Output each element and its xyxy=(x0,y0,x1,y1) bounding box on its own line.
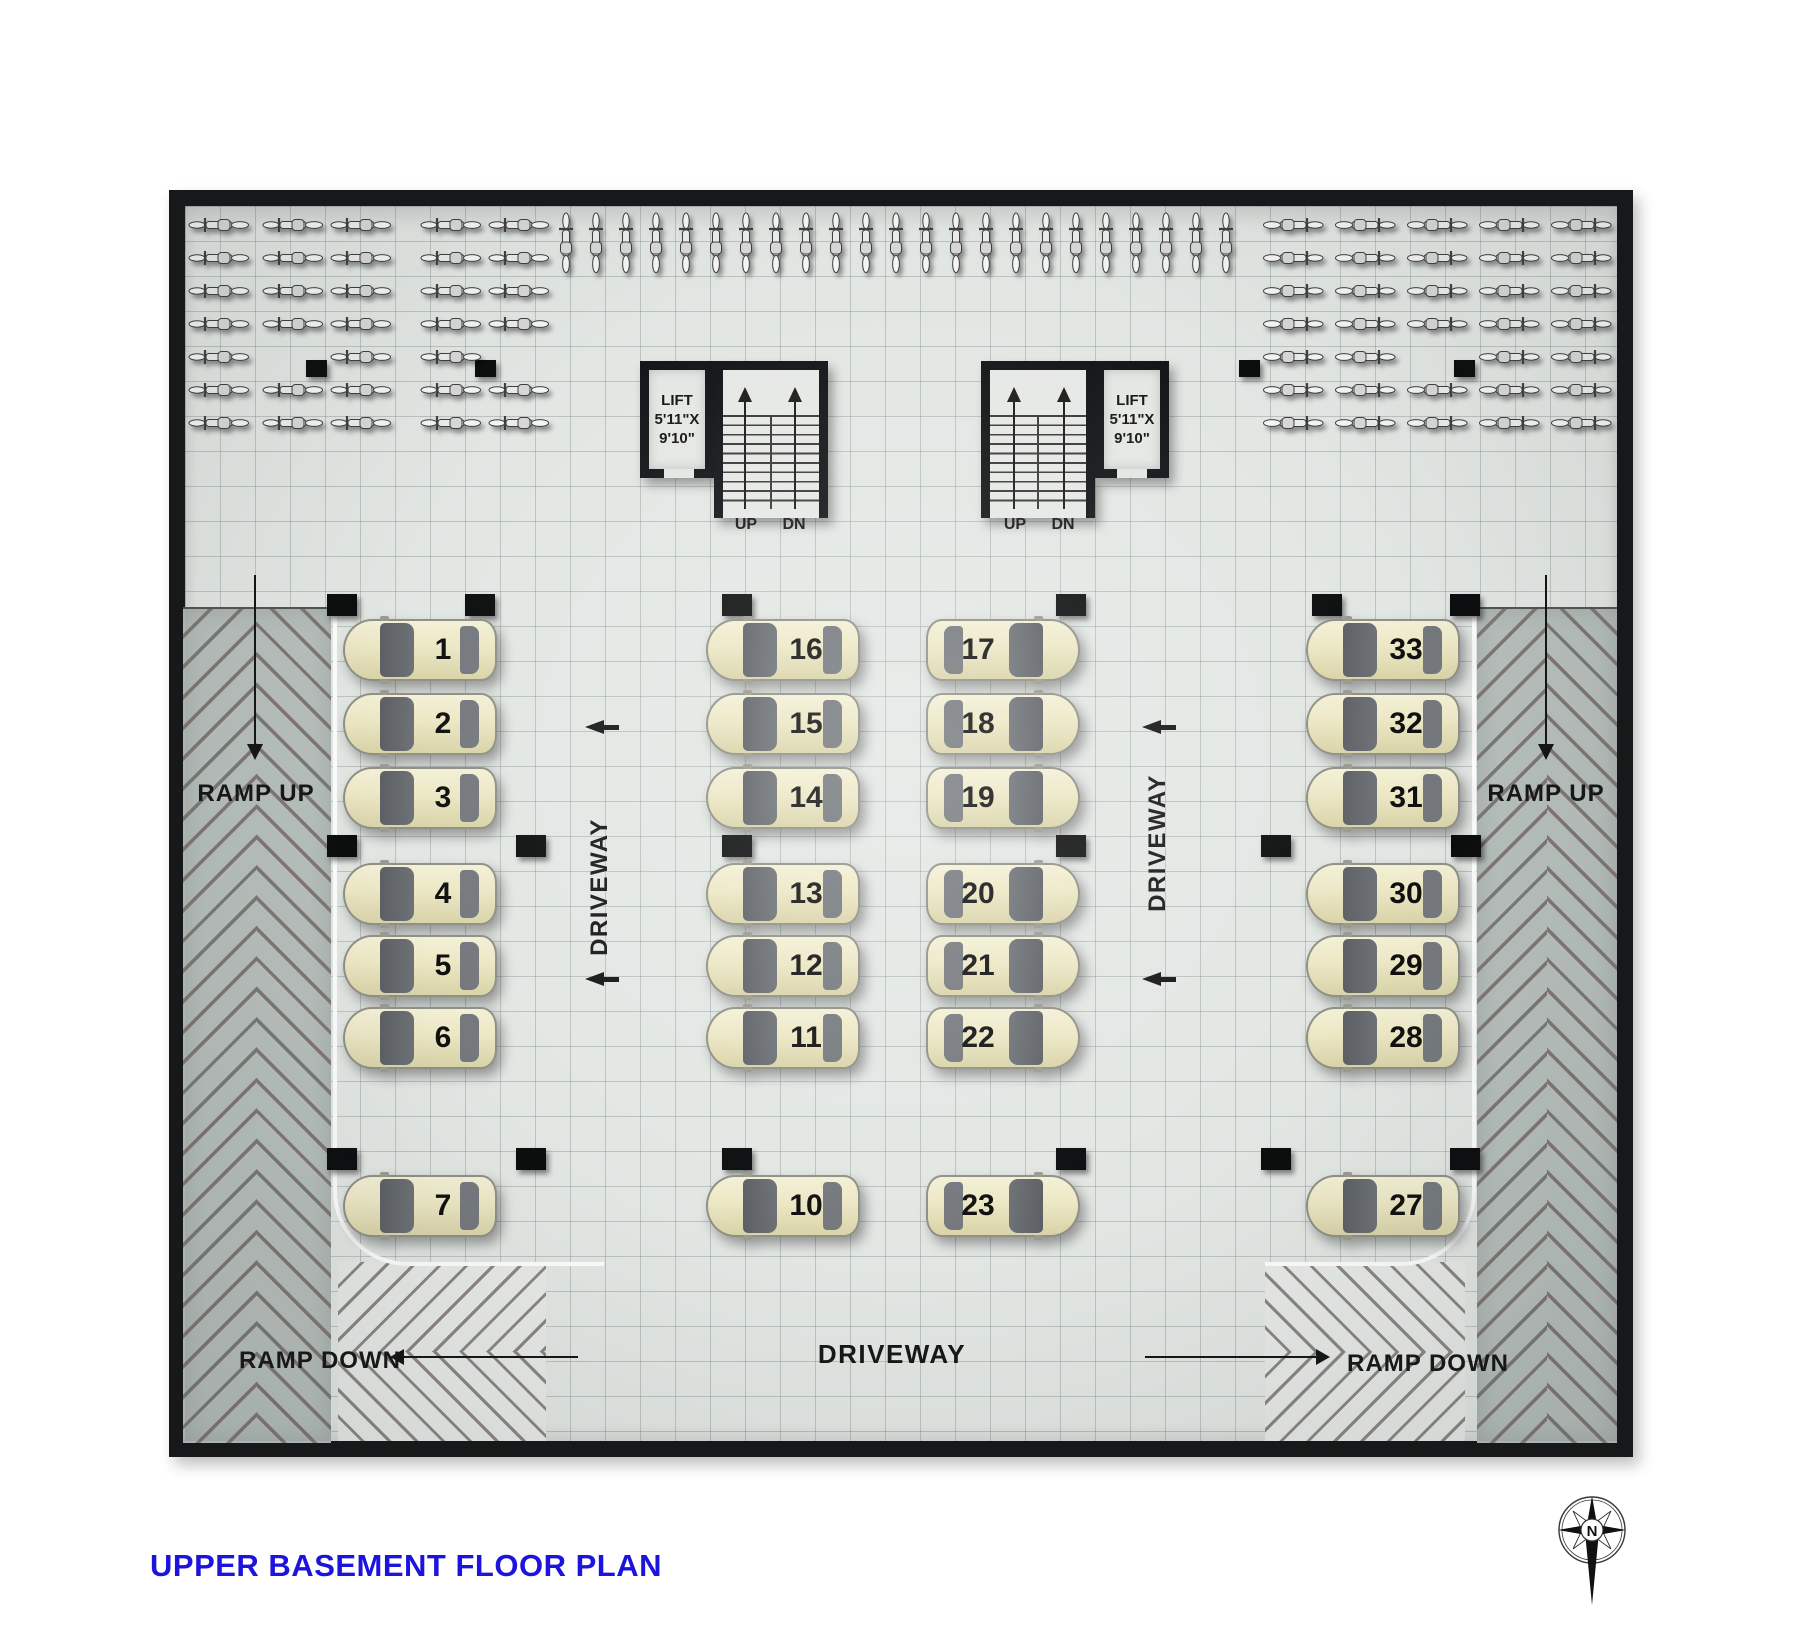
car-windshield xyxy=(380,867,414,921)
slot-number: 12 xyxy=(783,934,829,998)
motorcycle-icon xyxy=(1406,380,1468,405)
column-pillar xyxy=(1261,1148,1291,1170)
ramp-up-label-left: RAMP UP xyxy=(176,780,336,808)
slot-number: 13 xyxy=(783,862,829,926)
motorcycle-icon xyxy=(706,212,726,279)
parking-slot-car-28: 28 xyxy=(1305,1006,1461,1070)
parking-slot-car-30: 30 xyxy=(1305,862,1461,926)
car-windshield xyxy=(1343,1179,1377,1233)
motorcycle-icon xyxy=(1334,380,1396,405)
column-pillar xyxy=(516,835,546,857)
parking-slot-car-14: 14 xyxy=(705,766,861,830)
motorcycle-icon xyxy=(826,212,846,279)
car-windshield xyxy=(380,623,414,677)
column-pillar xyxy=(722,1148,752,1170)
column-pillar xyxy=(306,360,327,377)
slot-number: 3 xyxy=(420,766,466,830)
car-windshield xyxy=(1009,623,1043,677)
slot-number: 22 xyxy=(955,1006,1001,1070)
motorcycle-icon xyxy=(420,314,482,339)
driveway-direction-arrow-icon xyxy=(585,972,621,986)
column-pillar xyxy=(1451,835,1481,857)
column-pillar xyxy=(1454,360,1475,377)
parking-slot-car-22: 22 xyxy=(925,1006,1081,1070)
slot-number: 6 xyxy=(420,1006,466,1070)
stairs-up-label-right: UP xyxy=(995,516,1035,534)
motorcycle-icon xyxy=(1262,347,1324,372)
car-windshield xyxy=(743,867,777,921)
motorcycle-icon xyxy=(188,281,250,306)
driveway-direction-arrow-icon xyxy=(585,720,621,734)
column-pillar xyxy=(1056,835,1086,857)
motorcycle-icon xyxy=(188,248,250,273)
stairs-down-label-left: DN xyxy=(774,516,814,534)
chevron-pattern xyxy=(338,1262,546,1352)
motorcycle-icon xyxy=(1156,212,1176,279)
chevron-pattern xyxy=(1265,1262,1465,1352)
slot-number: 28 xyxy=(1383,1006,1429,1070)
car-windshield xyxy=(1009,1179,1043,1233)
chevron-pattern xyxy=(183,609,257,1443)
motorcycle-icon xyxy=(886,212,906,279)
driveway-direction-arrow-icon xyxy=(1142,720,1178,734)
motorcycle-icon xyxy=(188,215,250,240)
column-pillar xyxy=(465,594,495,616)
column-pillar xyxy=(722,835,752,857)
motorcycle-icon xyxy=(1262,248,1324,273)
lift-label-right: LIFT 5'11"X 9'10" xyxy=(1095,391,1169,448)
column-pillar xyxy=(327,1148,357,1170)
motorcycle-icon xyxy=(1262,215,1324,240)
motorcycle-icon xyxy=(420,413,482,438)
slot-number: 23 xyxy=(955,1174,1001,1238)
slot-number: 19 xyxy=(955,766,1001,830)
car-windshield xyxy=(743,1011,777,1065)
parking-slot-car-17: 17 xyxy=(925,618,1081,682)
motorcycle-icon xyxy=(1406,248,1468,273)
car-windshield xyxy=(1343,771,1377,825)
motorcycle-icon xyxy=(488,314,550,339)
motorcycle-icon xyxy=(736,212,756,279)
motorcycle-icon xyxy=(188,413,250,438)
parking-slot-car-29: 29 xyxy=(1305,934,1461,998)
chevron-pattern xyxy=(1477,609,1547,1443)
stair-divider xyxy=(1037,415,1039,509)
car-windshield xyxy=(1009,771,1043,825)
slot-number: 33 xyxy=(1383,618,1429,682)
lift-door-right xyxy=(1117,469,1147,478)
slot-number: 17 xyxy=(955,618,1001,682)
slot-number: 20 xyxy=(955,862,1001,926)
motorcycle-icon xyxy=(330,248,392,273)
parking-slot-car-15: 15 xyxy=(705,692,861,756)
ramp-down-arrow-icon xyxy=(1145,1356,1317,1358)
parking-slot-car-21: 21 xyxy=(925,934,1081,998)
motorcycle-icon xyxy=(330,413,392,438)
motorcycle-icon xyxy=(1478,281,1540,306)
parking-slot-car-12: 12 xyxy=(705,934,861,998)
car-windshield xyxy=(1009,939,1043,993)
motorcycle-icon xyxy=(1036,212,1056,279)
compass-north-icon: N xyxy=(1542,1478,1642,1608)
slot-number: 1 xyxy=(420,618,466,682)
motorcycle-icon xyxy=(586,212,606,279)
slot-number: 5 xyxy=(420,934,466,998)
slot-number: 30 xyxy=(1383,862,1429,926)
motorcycle-icon xyxy=(796,212,816,279)
motorcycle-icon xyxy=(1478,413,1540,438)
motorcycle-icon xyxy=(1262,281,1324,306)
column-pillar xyxy=(1056,594,1086,616)
slot-number: 29 xyxy=(1383,934,1429,998)
ramp-up-label-right: RAMP UP xyxy=(1466,780,1626,808)
floor-plan-canvas: LIFT 5'11"X 9'10" UP DN LIFT 5'11"X 9'10… xyxy=(0,0,1800,1650)
motorcycle-icon xyxy=(1006,212,1026,279)
parking-slot-car-2: 2 xyxy=(342,692,498,756)
motorcycle-icon xyxy=(262,215,324,240)
motorcycle-icon xyxy=(1334,281,1396,306)
driveway-direction-arrow-icon xyxy=(1142,972,1178,986)
car-windshield xyxy=(380,1011,414,1065)
motorcycle-icon xyxy=(556,212,576,279)
motorcycle-icon xyxy=(1066,212,1086,279)
motorcycle-icon xyxy=(1334,314,1396,339)
motorcycle-icon xyxy=(1478,215,1540,240)
parking-slot-car-10: 10 xyxy=(705,1174,861,1238)
column-pillar xyxy=(1261,835,1291,857)
motorcycle-icon xyxy=(420,248,482,273)
motorcycle-icon xyxy=(616,212,636,279)
ramp-down-label-right: RAMP DOWN xyxy=(1318,1350,1538,1378)
parking-slot-car-6: 6 xyxy=(342,1006,498,1070)
column-pillar xyxy=(1239,360,1260,377)
parking-slot-car-18: 18 xyxy=(925,692,1081,756)
driveway-label-left: DRIVEWAY xyxy=(586,807,616,967)
stair-up-arrow-icon xyxy=(1013,400,1015,509)
parking-slot-car-23: 23 xyxy=(925,1174,1081,1238)
motorcycle-icon xyxy=(1334,413,1396,438)
slot-number: 4 xyxy=(420,862,466,926)
motorcycle-icon xyxy=(1216,212,1236,279)
parking-slot-car-3: 3 xyxy=(342,766,498,830)
parking-slot-car-32: 32 xyxy=(1305,692,1461,756)
motorcycle-icon xyxy=(420,281,482,306)
column-pillar xyxy=(1312,594,1342,616)
motorcycle-icon xyxy=(646,212,666,279)
column-pillar xyxy=(327,594,357,616)
car-windshield xyxy=(743,623,777,677)
ramp-direction-arrow-icon xyxy=(254,575,256,745)
motorcycle-icon xyxy=(1334,248,1396,273)
motorcycle-icon xyxy=(1126,212,1146,279)
car-windshield xyxy=(1343,623,1377,677)
motorcycle-icon xyxy=(330,215,392,240)
car-windshield xyxy=(1343,867,1377,921)
parking-slot-car-5: 5 xyxy=(342,934,498,998)
motorcycle-icon xyxy=(488,380,550,405)
parking-slot-car-19: 19 xyxy=(925,766,1081,830)
car-windshield xyxy=(380,1179,414,1233)
parking-slot-car-11: 11 xyxy=(705,1006,861,1070)
slot-number: 7 xyxy=(420,1174,466,1238)
motorcycle-icon xyxy=(1550,413,1612,438)
parking-slot-car-4: 4 xyxy=(342,862,498,926)
motorcycle-icon xyxy=(1478,248,1540,273)
motorcycle-icon xyxy=(488,215,550,240)
column-pillar xyxy=(1056,1148,1086,1170)
motorcycle-icon xyxy=(330,281,392,306)
car-windshield xyxy=(1009,1011,1043,1065)
motorcycle-icon xyxy=(1550,347,1612,372)
motorcycle-icon xyxy=(1096,212,1116,279)
slot-number: 2 xyxy=(420,692,466,756)
column-pillar xyxy=(1450,594,1480,616)
stair-up-arrow-icon xyxy=(794,400,796,509)
motorcycle-icon xyxy=(420,215,482,240)
slot-number: 18 xyxy=(955,692,1001,756)
car-windshield xyxy=(1343,939,1377,993)
car-windshield xyxy=(1343,697,1377,751)
parking-slot-car-27: 27 xyxy=(1305,1174,1461,1238)
stair-up-arrow-icon xyxy=(1063,400,1065,509)
staircase-left xyxy=(714,361,828,518)
motorcycle-icon xyxy=(976,212,996,279)
motorcycle-icon xyxy=(676,212,696,279)
motorcycle-icon xyxy=(488,413,550,438)
motorcycle-icon xyxy=(188,380,250,405)
motorcycle-icon xyxy=(1262,413,1324,438)
motorcycle-icon xyxy=(262,380,324,405)
compass-north-letter: N xyxy=(1587,1523,1598,1540)
car-windshield xyxy=(1343,1011,1377,1065)
motorcycle-icon xyxy=(330,347,392,372)
motorcycle-icon xyxy=(1478,314,1540,339)
motorcycle-icon xyxy=(330,380,392,405)
chevron-pattern xyxy=(1547,609,1617,1443)
driveway-label-bottom: DRIVEWAY xyxy=(772,1339,1012,1370)
driveway-label-right: DRIVEWAY xyxy=(1144,763,1174,923)
motorcycle-icon xyxy=(262,281,324,306)
column-pillar xyxy=(516,1148,546,1170)
motorcycle-icon xyxy=(1334,347,1396,372)
parking-slot-car-16: 16 xyxy=(705,618,861,682)
page-title: UPPER BASEMENT FLOOR PLAN xyxy=(150,1548,662,1584)
chevron-pattern xyxy=(257,609,331,1443)
motorcycle-icon xyxy=(188,347,250,372)
stairs-up-label-left: UP xyxy=(726,516,766,534)
motorcycle-icon xyxy=(1262,380,1324,405)
car-windshield xyxy=(1009,697,1043,751)
ramp-down-arrow-icon xyxy=(403,1356,578,1358)
slot-number: 15 xyxy=(783,692,829,756)
car-windshield xyxy=(380,697,414,751)
motorcycle-icon xyxy=(262,248,324,273)
motorcycle-icon xyxy=(262,413,324,438)
parking-slot-car-31: 31 xyxy=(1305,766,1461,830)
slot-number: 16 xyxy=(783,618,829,682)
motorcycle-icon xyxy=(330,314,392,339)
motorcycle-icon xyxy=(1406,413,1468,438)
column-pillar xyxy=(1450,1148,1480,1170)
car-windshield xyxy=(380,939,414,993)
slot-number: 31 xyxy=(1383,766,1429,830)
car-windshield xyxy=(743,771,777,825)
ramp-direction-arrow-icon xyxy=(1545,575,1547,745)
motorcycle-icon xyxy=(1550,314,1612,339)
car-windshield xyxy=(743,1179,777,1233)
slot-number: 27 xyxy=(1383,1174,1429,1238)
slot-number: 32 xyxy=(1383,692,1429,756)
stair-divider xyxy=(770,415,772,509)
parking-slot-car-13: 13 xyxy=(705,862,861,926)
parking-slot-car-7: 7 xyxy=(342,1174,498,1238)
car-windshield xyxy=(380,771,414,825)
motorcycle-icon xyxy=(856,212,876,279)
motorcycle-icon xyxy=(1334,215,1396,240)
ramp-up-left xyxy=(183,607,331,1443)
motorcycle-icon xyxy=(916,212,936,279)
car-windshield xyxy=(743,697,777,751)
motorcycle-icon xyxy=(1478,347,1540,372)
motorcycle-icon xyxy=(946,212,966,279)
motorcycle-icon xyxy=(488,248,550,273)
motorcycle-icon xyxy=(1262,314,1324,339)
lift-door-left xyxy=(664,469,694,478)
car-windshield xyxy=(743,939,777,993)
car-windshield xyxy=(1009,867,1043,921)
slot-number: 21 xyxy=(955,934,1001,998)
lift-label-left: LIFT 5'11"X 9'10" xyxy=(640,391,714,448)
parking-slot-car-1: 1 xyxy=(342,618,498,682)
parking-slot-car-20: 20 xyxy=(925,862,1081,926)
motorcycle-icon xyxy=(262,314,324,339)
motorcycle-icon xyxy=(420,380,482,405)
motorcycle-icon xyxy=(1406,215,1468,240)
motorcycle-icon xyxy=(1186,212,1206,279)
column-pillar xyxy=(722,594,752,616)
stair-up-arrow-icon xyxy=(744,400,746,509)
slot-number: 11 xyxy=(783,1006,829,1070)
motorcycle-icon xyxy=(1550,248,1612,273)
column-pillar xyxy=(327,835,357,857)
parking-slot-car-33: 33 xyxy=(1305,618,1461,682)
motorcycle-icon xyxy=(420,347,482,372)
motorcycle-icon xyxy=(1550,281,1612,306)
staircase-right xyxy=(981,361,1095,518)
slot-number: 10 xyxy=(783,1174,829,1238)
motorcycle-icon xyxy=(1478,380,1540,405)
motorcycle-icon xyxy=(188,314,250,339)
motorcycle-icon xyxy=(766,212,786,279)
stairs-down-label-right: DN xyxy=(1043,516,1083,534)
motorcycle-icon xyxy=(1550,380,1612,405)
motorcycle-icon xyxy=(1550,215,1612,240)
slot-number: 14 xyxy=(783,766,829,830)
motorcycle-icon xyxy=(1406,314,1468,339)
motorcycle-icon xyxy=(1406,281,1468,306)
motorcycle-icon xyxy=(488,281,550,306)
